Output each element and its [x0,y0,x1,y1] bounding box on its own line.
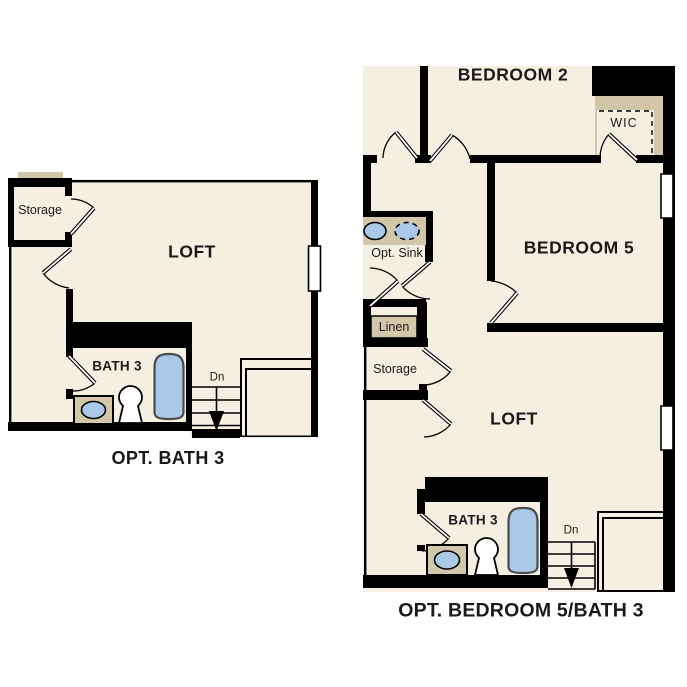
label-opt-sink: Opt. Sink [371,247,422,260]
room-label-wic: WIC [610,117,637,130]
storage-shelf-strip [18,172,63,179]
bathtub [509,508,538,573]
sink-basin [364,223,386,240]
sink-basin [435,551,460,569]
floorplan-drawing [0,0,687,687]
room-label-loft: LOFT [490,410,538,428]
window [661,174,673,218]
plan-caption-right: OPT. BEDROOM 5/BATH 3 [398,601,643,621]
room-label-bedroom2: BEDROOM 2 [458,66,568,84]
window [661,406,673,450]
room-label-storage: Storage [373,363,417,376]
chase-block [592,66,675,96]
plan-caption-left: OPT. BATH 3 [111,449,224,467]
room-label-bedroom5: BEDROOM 5 [524,239,634,257]
room-label-loft: LOFT [168,243,216,261]
toilet [475,538,498,575]
toilet [119,386,142,423]
room-label-bath3: BATH 3 [92,359,142,373]
optional-sink-basin-dashed [395,223,419,240]
sink-basin [82,402,106,419]
floorplan-canvas: Storage LOFT BATH 3 Dn OPT. BATH 3 BEDRO… [0,0,687,687]
bathtub [155,354,184,419]
stairs-label-dn: Dn [564,525,579,537]
room-label-storage: Storage [18,204,62,217]
right-plan [363,66,675,592]
stairs-label-dn: Dn [210,372,225,384]
label-linen: Linen [379,321,410,334]
room-label-bath3: BATH 3 [448,513,498,527]
opt-sink-counter [363,217,426,245]
window [309,246,321,291]
